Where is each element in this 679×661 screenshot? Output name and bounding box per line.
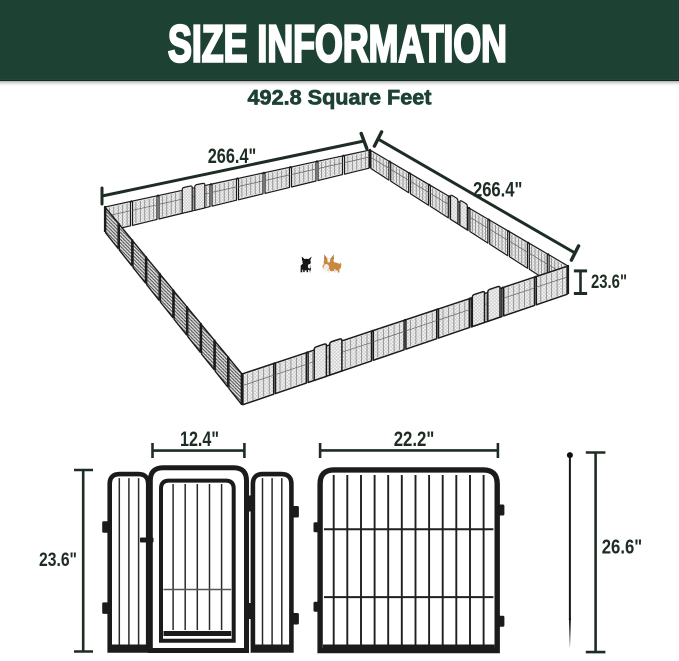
svg-text:22.2": 22.2" bbox=[394, 427, 435, 451]
svg-text:492.8 Square Feet: 492.8 Square Feet bbox=[248, 86, 432, 110]
svg-text:266.4": 266.4" bbox=[208, 144, 257, 168]
svg-text:23.6": 23.6" bbox=[39, 549, 77, 571]
svg-text:266.4": 266.4" bbox=[473, 178, 523, 202]
svg-text:SIZE INFORMATION: SIZE INFORMATION bbox=[168, 16, 507, 74]
svg-text:26.6": 26.6" bbox=[602, 537, 643, 559]
svg-text:12.4": 12.4" bbox=[180, 427, 219, 451]
svg-text:23.6": 23.6" bbox=[591, 271, 627, 293]
